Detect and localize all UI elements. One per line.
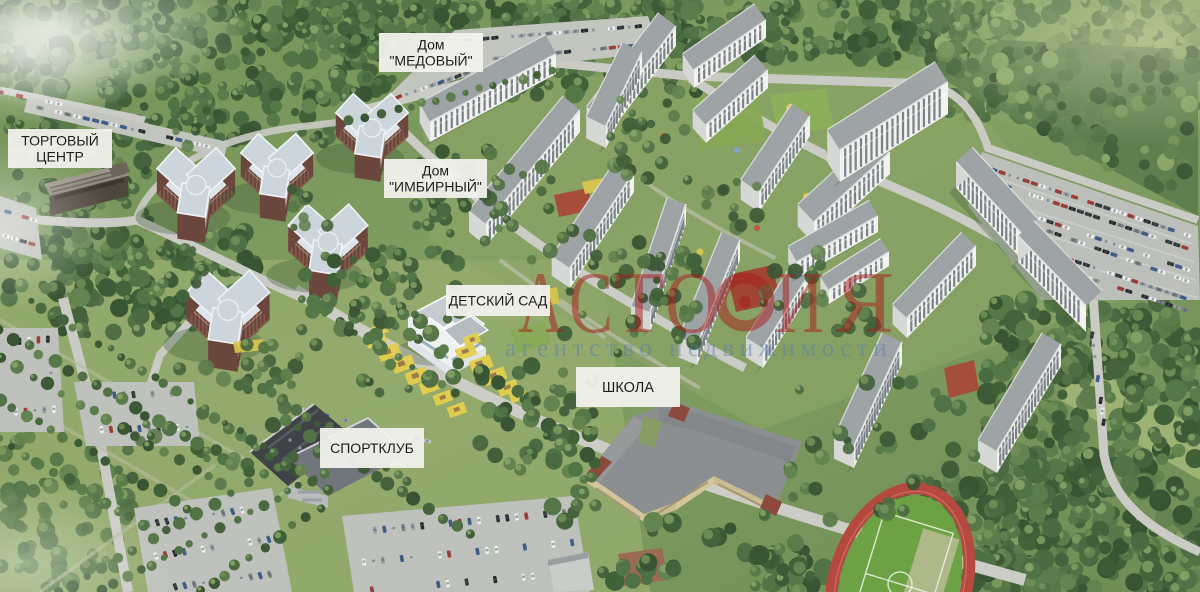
svg-text:Дом: Дом (422, 162, 449, 178)
svg-text:СПОРТКЛУБ: СПОРТКЛУБ (330, 440, 414, 456)
svg-text:ТОРГОВЫЙ: ТОРГОВЫЙ (21, 131, 99, 148)
svg-text:"МЕДОВЫЙ": "МЕДОВЫЙ" (389, 51, 472, 68)
svg-text:ДЕТСКИЙ САД: ДЕТСКИЙ САД (449, 291, 548, 308)
svg-text:ШКОЛА: ШКОЛА (602, 380, 654, 396)
svg-text:Дом: Дом (417, 36, 444, 52)
svg-text:ЦЕНТР: ЦЕНТР (36, 148, 84, 164)
svg-text:агентство недвижимости: агентство недвижимости (505, 335, 892, 362)
svg-text:"ИМБИРНЫЙ": "ИМБИРНЫЙ" (389, 177, 482, 194)
